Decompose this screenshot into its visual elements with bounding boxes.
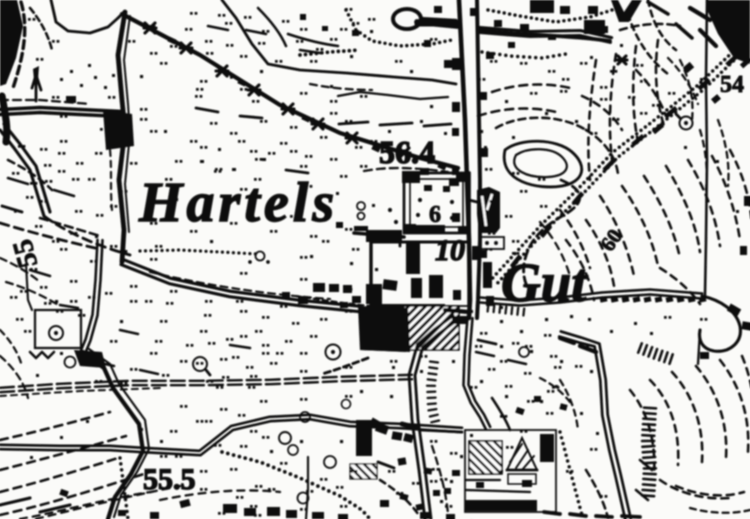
svg-text:54: 54 xyxy=(720,72,744,98)
svg-text:Hartels: Hartels xyxy=(138,172,338,234)
svg-text:56.4: 56.4 xyxy=(379,134,435,170)
svg-text:6: 6 xyxy=(429,202,441,228)
svg-text:10: 10 xyxy=(435,234,465,267)
